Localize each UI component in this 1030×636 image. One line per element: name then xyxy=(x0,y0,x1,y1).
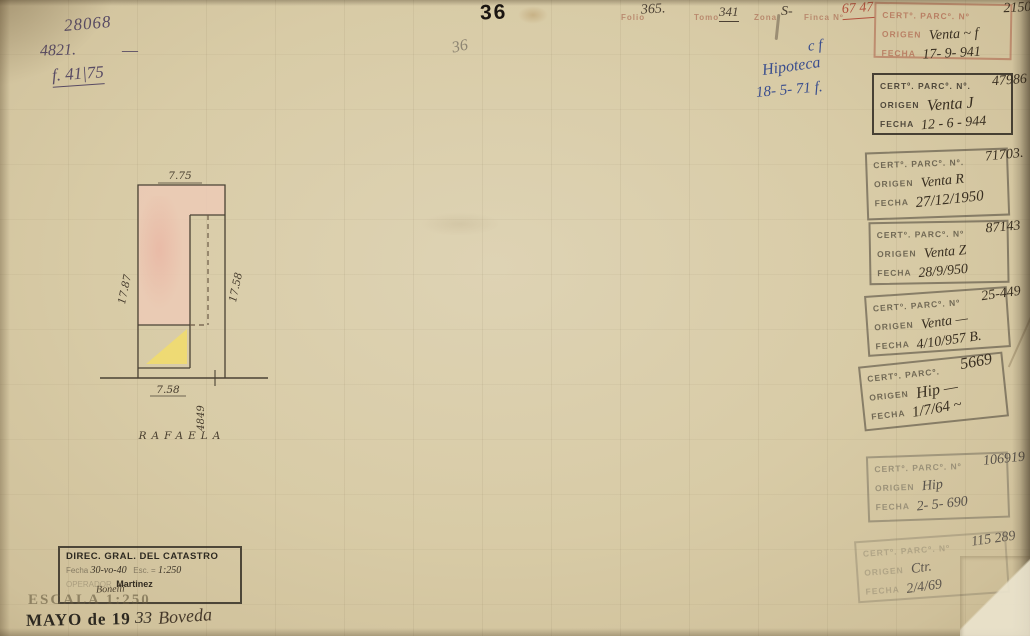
tomo-label: Tomo xyxy=(694,13,719,22)
cadastral-record-sheet: 28068 4821. — f. 41|75 36 36 Folio 365. … xyxy=(0,0,1030,636)
top-number-annotation: 28068 xyxy=(63,12,112,36)
stamp-origen-label: ORIGEN xyxy=(874,177,914,188)
stamp-fecha: 17- 9- 941 xyxy=(923,44,982,63)
stamp-origen: Venta R xyxy=(920,171,965,191)
parcel-plot-diagram: 7.75 17.87 17.58 7.58 4849 RAFAELA xyxy=(92,166,302,451)
cert-parc-stamp-5: CERTº. PARCº. Nº25-449 ORIGENVenta — FEC… xyxy=(864,286,1011,357)
stamp-origen-label: ORIGEN xyxy=(882,28,922,39)
cert-parc-stamp-4: CERTº. PARCº. Nº87143 ORIGENVenta Z FECH… xyxy=(868,220,1009,285)
finca-value: 67 47 xyxy=(841,0,874,20)
stamp-fecha-label: FECHA xyxy=(874,197,909,208)
right-dimension-label: 17.58 xyxy=(227,271,245,303)
stamp-fecha-label: FECHA xyxy=(880,119,914,129)
stamp-no-label: CERTº. PARCº. Nº. xyxy=(873,157,964,170)
stamp-no-label: CERTº. PARCº. Nº xyxy=(863,542,951,558)
catastro-stamp-fecha-row: Fecha 30-vo-40 Esc. = 1:250 xyxy=(66,565,234,576)
stamp-origen-label: ORIGEN xyxy=(875,481,915,492)
zona-label: Zona xyxy=(754,13,777,22)
stamp-origen: Ctr. xyxy=(910,559,933,578)
stamp-no-label: CERTº. PARCº. Nº xyxy=(877,228,965,240)
finca-label: Finca Nº xyxy=(804,13,844,22)
catastro-esc-label: Esc. = xyxy=(133,566,155,575)
stamp-no-label: CERTº. PARCº. Nº. xyxy=(880,81,971,91)
top-dimension-label: 7.75 xyxy=(168,170,192,182)
zona-value: S- xyxy=(781,4,793,20)
street-number-label: 4849 xyxy=(196,405,207,432)
parcel-yellow-triangle xyxy=(146,329,187,364)
cert-parc-stamp-2: CERTº. PARCº. Nº.47986 ORIGENVenta J FEC… xyxy=(872,73,1013,135)
stamp-number: 5669 xyxy=(959,350,994,373)
left-dimension-label: 17.87 xyxy=(116,273,134,305)
page-number-pencil: 36 xyxy=(450,37,469,58)
signature: Boveda xyxy=(157,604,212,629)
stamp-origen: Venta ~ f xyxy=(928,25,978,44)
stamp-fecha-label: FECHA xyxy=(875,500,910,511)
stamp-number: 47986 xyxy=(991,71,1027,89)
paper-stain xyxy=(518,6,548,24)
stamp-number: 25-449 xyxy=(980,283,1022,304)
hipoteca-note-initials: c f xyxy=(807,37,823,55)
stamp-number: 115 289 xyxy=(970,528,1016,550)
stamp-origen: Venta Z xyxy=(923,243,967,263)
parcel-dashed-boundary xyxy=(190,215,208,325)
date-printed: MAYO de 19 xyxy=(26,609,131,631)
stamp-no-label: CERTº. PARCº. Nº xyxy=(882,9,970,21)
catastro-esc-value: 1:250 xyxy=(158,565,181,576)
stamp-origen-label: ORIGEN xyxy=(880,100,920,110)
hipoteca-note-date: 18- 5- 71 f. xyxy=(755,79,823,102)
tomo-value: 341 xyxy=(719,4,739,22)
stamp-number: 21504 xyxy=(1003,0,1030,17)
stamp-fecha-label: FECHA xyxy=(882,47,916,58)
folio-reference-annotation: f. 41|75 xyxy=(51,62,104,88)
cert-parc-stamp-1: CERTº. PARCº. Nº21504 ORIGENVenta ~ f FE… xyxy=(874,2,1013,60)
cert-parc-stamp-3: CERTº. PARCº. Nº.71703. ORIGENVenta R FE… xyxy=(865,148,1010,221)
stamp-origen-label: ORIGEN xyxy=(877,248,917,259)
stamp-origen-label: ORIGEN xyxy=(869,388,909,402)
catastro-stamp-operador-row: OPERADOR Martinez xyxy=(66,579,234,589)
stamp-origen-label: ORIGEN xyxy=(874,319,914,332)
stamp-fecha-label: FECHA xyxy=(877,267,911,278)
stamp-no-label: CERTº. PARCº. Nº xyxy=(873,297,961,313)
stamp-origen: Venta J xyxy=(926,94,974,115)
stamp-fecha: 12 - 6 - 944 xyxy=(921,113,987,134)
folio-value: 365. xyxy=(641,1,666,18)
date-handwritten: 33 xyxy=(135,608,152,628)
street-name-label: RAFAELA xyxy=(138,430,226,442)
cert-parc-stamp-6: CERTº. PARCº.5669 ORIGENHip — FECHA1/7/6… xyxy=(858,352,1009,432)
cert-parc-stamp-8: CERTº. PARCº. Nº115 289 ORIGENCtr. FECHA… xyxy=(854,531,1010,603)
stamp-number: 106919 xyxy=(982,449,1025,469)
paper-smudge xyxy=(420,212,500,236)
stamp-origen-label: ORIGEN xyxy=(864,564,904,577)
stamp-fecha: 2- 5- 690 xyxy=(916,494,969,515)
escala-stamp: ESCALA 1:250 xyxy=(28,592,151,609)
page-number-bold: 36 xyxy=(480,1,508,26)
catastro-fecha-label: Fecha xyxy=(66,566,88,575)
cert-parc-stamp-7: CERTº. PARCº. Nº106919 ORIGENHip FECHA2-… xyxy=(866,452,1010,523)
stamp-fecha-label: FECHA xyxy=(871,408,906,422)
stamp-fecha: 28/9/950 xyxy=(918,261,969,281)
bottom-edge-shade xyxy=(0,628,1030,636)
file-number-annotation: 4821. xyxy=(40,41,77,60)
stamp-no-label: CERTº. PARCº. Nº xyxy=(874,461,962,474)
stamp-number: 87143 xyxy=(984,218,1020,237)
stamp-fecha-label: FECHA xyxy=(865,584,900,596)
stamp-fecha-label: FECHA xyxy=(875,339,910,351)
catastro-stamp-title: DIREC. GRAL. DEL CATASTRO xyxy=(66,551,234,562)
paper-crease xyxy=(1008,303,1030,368)
dash-annotation: — xyxy=(122,40,138,61)
stamp-origen: Hip xyxy=(921,477,944,495)
stamp-number: 71703. xyxy=(984,145,1024,165)
catastro-fecha-value: 30-vo-40 xyxy=(90,565,126,576)
stamp-fecha: 2/4/69 xyxy=(906,577,944,598)
bottom-dimension-label: 7.58 xyxy=(156,384,180,396)
parcel-pink-blush xyxy=(140,196,188,316)
left-edge-shade xyxy=(0,0,10,636)
hipoteca-note-word: Hipoteca xyxy=(761,54,822,80)
